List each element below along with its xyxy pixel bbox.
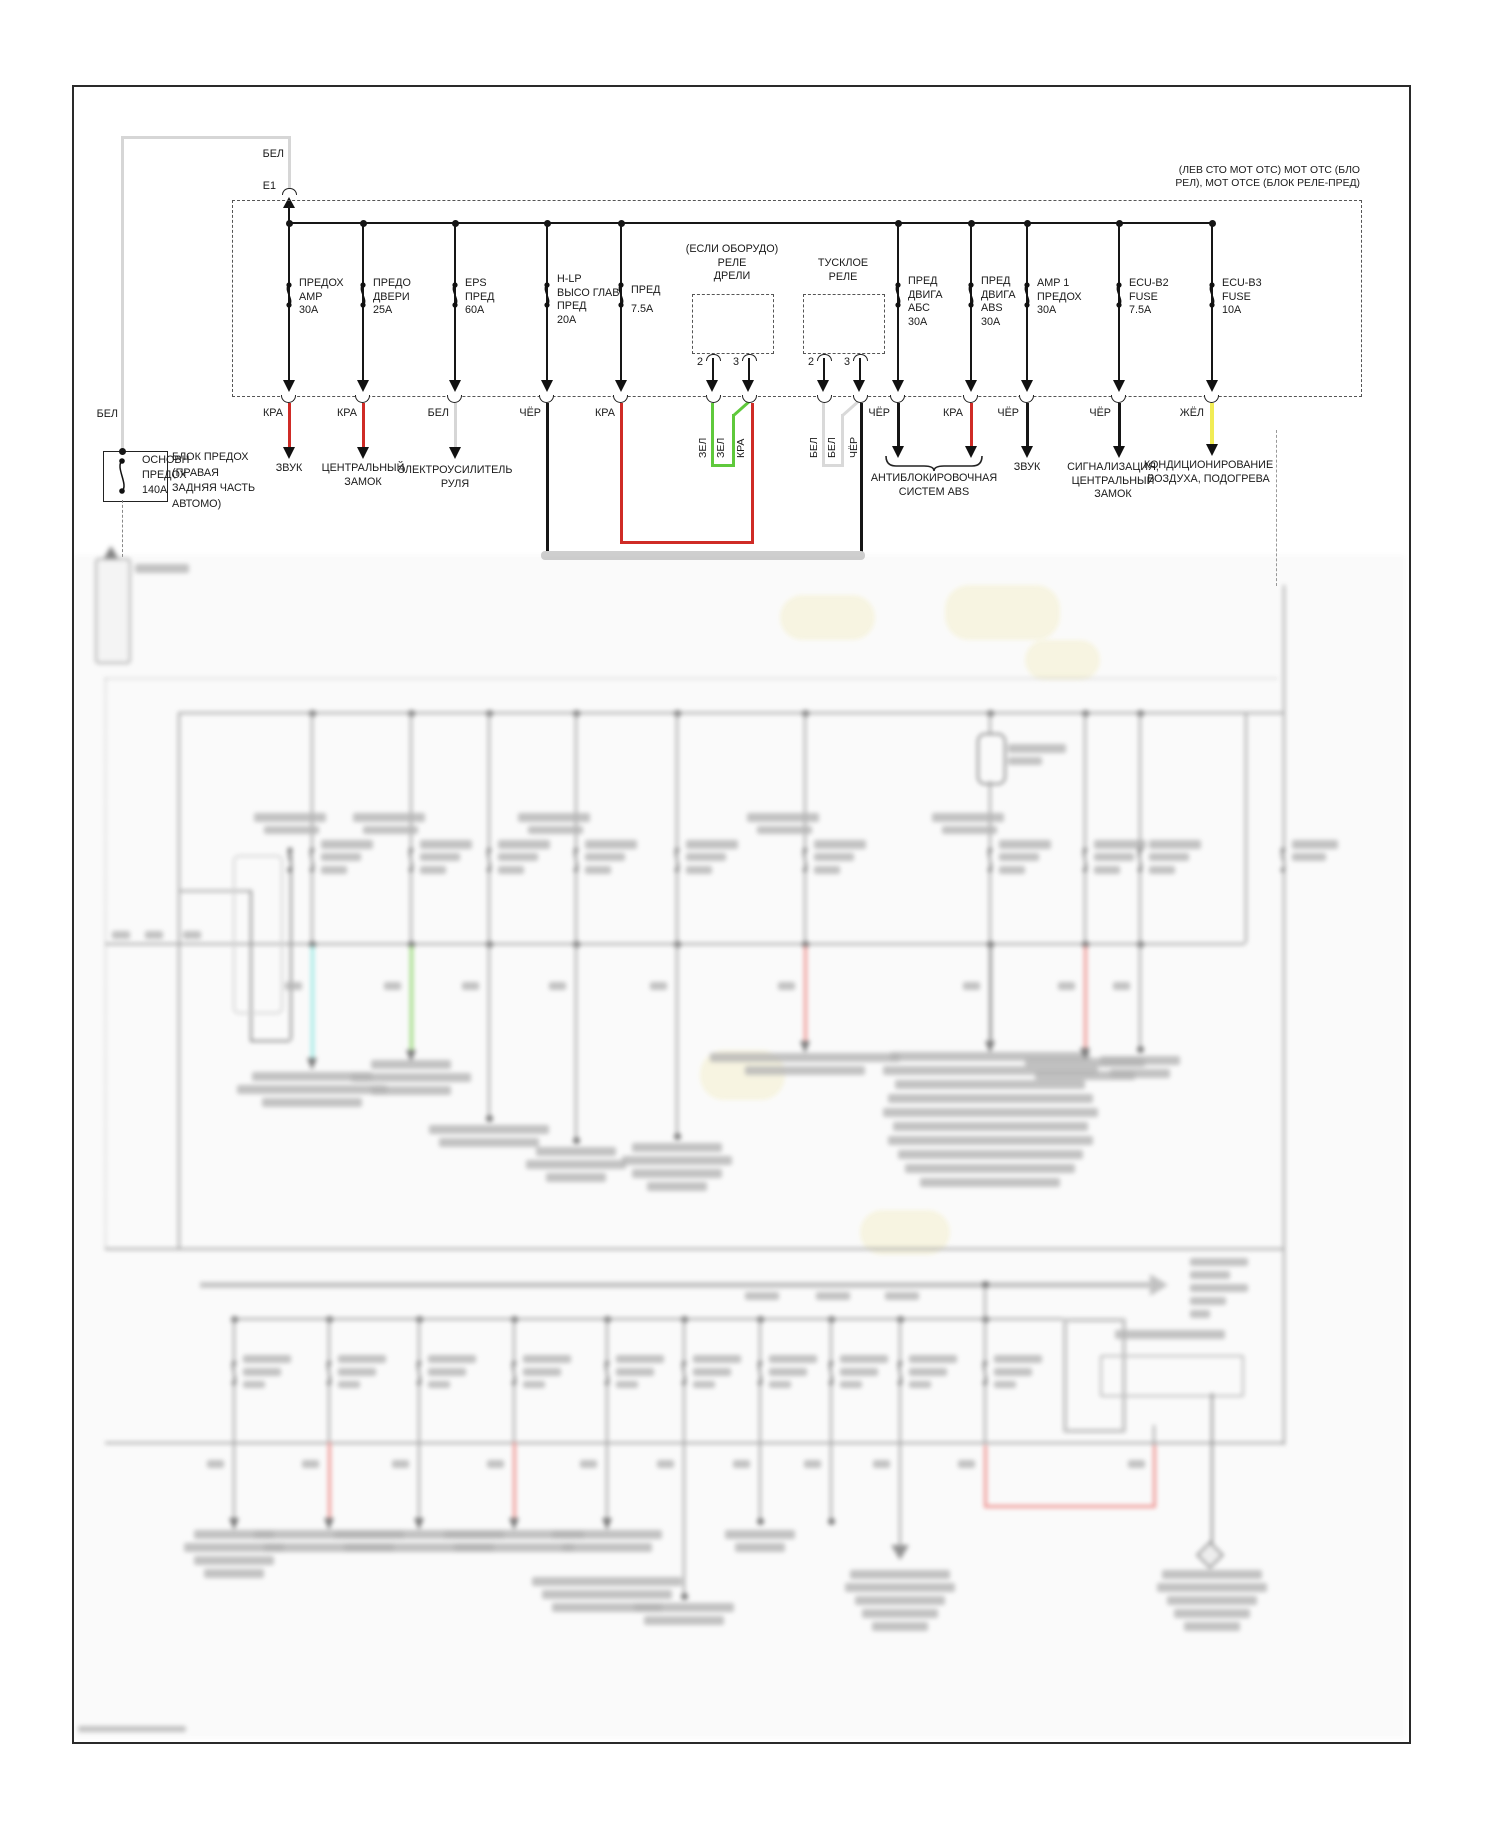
label-blob <box>1157 1583 1267 1592</box>
label-blob <box>994 1381 1016 1388</box>
label-blob <box>909 1368 947 1376</box>
wire-segment <box>488 943 490 1115</box>
label-blob <box>634 1603 734 1612</box>
label-blob <box>338 1368 376 1376</box>
label-blob <box>338 1381 360 1388</box>
label-blob <box>498 853 538 861</box>
junction-dot <box>828 1518 835 1525</box>
fuse-symbol <box>669 845 685 880</box>
wire-segment <box>1153 1425 1155 1445</box>
label-blob <box>942 826 997 834</box>
pin-stem <box>712 358 714 382</box>
label-blob <box>693 1381 715 1388</box>
wire-segment <box>234 1318 1063 1320</box>
label-blob <box>999 853 1039 861</box>
connector-box <box>1100 1355 1244 1397</box>
fuse-symbol <box>599 1358 615 1393</box>
label-blob <box>428 1368 466 1376</box>
label-blob <box>363 826 418 834</box>
wire-arrow-icon <box>800 1041 810 1053</box>
fuse-symbol <box>982 845 998 880</box>
label-blob <box>735 1543 785 1552</box>
label-blob <box>487 1460 504 1468</box>
label-blob <box>686 866 712 874</box>
label-blob <box>814 840 866 849</box>
label-blob <box>532 1577 682 1586</box>
label-blob <box>585 853 625 861</box>
wire-arrow-icon <box>742 380 754 392</box>
wire-segment <box>105 1442 1283 1444</box>
smudge <box>1025 640 1100 680</box>
label-blob <box>647 1182 707 1191</box>
wire-segment <box>250 1040 290 1042</box>
smudge <box>945 585 1060 640</box>
label-blob <box>428 1355 476 1363</box>
label-blob <box>898 1150 1083 1159</box>
fuse-symbol <box>506 1358 522 1393</box>
dashed-edge <box>105 678 1277 679</box>
label-blob <box>523 1381 545 1388</box>
label-blob <box>321 866 347 874</box>
fuse-symbol <box>1204 280 1220 315</box>
connector-box <box>95 558 131 664</box>
label-blob <box>909 1381 931 1388</box>
wire-segment <box>418 1442 420 1518</box>
fuse-symbol <box>1275 845 1291 880</box>
label-blob <box>542 1590 672 1599</box>
label-blob <box>686 853 726 861</box>
fuse-symbol <box>977 1358 993 1393</box>
smudge <box>780 595 875 640</box>
label-blob <box>462 982 479 990</box>
label-blob <box>1190 1310 1210 1318</box>
label-blob <box>909 1355 957 1363</box>
wire-segment <box>1245 712 1247 943</box>
label-blob <box>686 840 738 849</box>
label-blob <box>1008 744 1066 753</box>
wire-arrow-icon <box>414 1518 424 1530</box>
label-blob <box>757 826 812 834</box>
label-blob <box>632 1143 722 1152</box>
wire-arrow-icon <box>307 1058 317 1070</box>
dashed-edge <box>105 678 106 1248</box>
wire-arrow-icon <box>324 1518 334 1530</box>
wire-segment <box>328 1442 331 1518</box>
label-blob <box>814 853 854 861</box>
wire-segment <box>200 1282 1150 1288</box>
label-blob <box>1110 1069 1170 1078</box>
junction-dot <box>573 1137 580 1144</box>
label-blob <box>840 1355 888 1363</box>
next-page-arrow-icon <box>1150 1274 1168 1296</box>
wire-segment <box>311 946 314 1058</box>
label-blob <box>999 866 1025 874</box>
label-blob <box>994 1368 1032 1376</box>
fuse-symbol <box>890 280 906 315</box>
label-blob <box>145 931 163 939</box>
label-blob <box>546 1173 606 1182</box>
label-blob <box>1184 1622 1240 1631</box>
wire-segment <box>1139 712 1141 943</box>
label-blob <box>725 1530 795 1539</box>
wire-segment <box>1211 1393 1213 1545</box>
label-blob <box>1058 982 1075 990</box>
wire-segment <box>899 1442 901 1545</box>
label-blob <box>353 813 425 822</box>
label-blob <box>549 982 566 990</box>
wire-arrow-icon <box>817 380 829 392</box>
label-blob <box>745 1066 865 1075</box>
label-blob <box>194 1556 274 1565</box>
label-blob <box>920 1178 1060 1187</box>
fuse-symbol <box>321 1358 337 1393</box>
label-blob <box>338 1355 386 1363</box>
label-blob <box>518 813 590 822</box>
fuse-symbol <box>481 845 497 880</box>
fuse-symbol <box>355 280 371 315</box>
junction-dot <box>681 1593 688 1600</box>
label-blob <box>616 1355 664 1363</box>
ground-icon <box>891 1545 909 1560</box>
label-blob <box>999 840 1051 849</box>
label-blob <box>420 853 460 861</box>
label-blob <box>1190 1271 1230 1279</box>
junction-dot <box>1137 1046 1144 1053</box>
label-blob <box>1008 757 1042 765</box>
label-blob <box>371 1060 451 1069</box>
label-blob <box>321 840 373 849</box>
label-blob <box>523 1368 561 1376</box>
wire-segment <box>606 1442 608 1518</box>
label-blob <box>207 1460 224 1468</box>
label-blob <box>616 1368 654 1376</box>
label-blob <box>585 840 637 849</box>
label-blob <box>254 813 326 822</box>
wire-arrow-icon <box>706 380 718 392</box>
fuse-symbol <box>823 1358 839 1393</box>
label-blob <box>528 826 583 834</box>
blurred-lower-diagram <box>0 0 1500 1828</box>
label-blob <box>710 1053 900 1062</box>
wire-arrow-icon <box>541 380 553 392</box>
label-blob <box>958 1460 975 1468</box>
wire-arrow-icon <box>965 380 977 392</box>
label-blob <box>262 1098 362 1107</box>
wire-arrow-icon <box>283 380 295 392</box>
wire-arrow-icon <box>1021 380 1033 392</box>
wire-segment <box>1084 946 1087 1048</box>
wire-arrow-icon <box>229 1518 239 1530</box>
label-blob <box>840 1368 878 1376</box>
label-blob <box>994 1355 1042 1363</box>
fuse-symbol <box>1111 280 1127 315</box>
wiring-diagram-page: БЕЛ E1 (ЛЕВ СТО МОТ ОТС) МОТ ОТС (БЛО РЕ… <box>0 0 1500 1828</box>
wire-segment <box>488 712 490 943</box>
fuse-symbol <box>963 280 979 315</box>
wire-arrow-icon <box>357 380 369 392</box>
wire-arrow-icon <box>615 380 627 392</box>
label-blob <box>429 1125 549 1134</box>
wire-segment <box>1283 585 1285 1445</box>
pin-stem <box>823 358 825 382</box>
label-blob <box>580 1460 597 1468</box>
wire-arrow-icon <box>1113 380 1125 392</box>
label-blob <box>1149 853 1189 861</box>
label-blob <box>883 1108 1098 1117</box>
label-blob <box>526 1160 626 1169</box>
label-blob <box>895 1080 1085 1089</box>
label-blob <box>814 866 840 874</box>
wire-segment <box>575 943 577 1137</box>
junction-dot <box>982 1281 989 1288</box>
label-blob <box>778 982 795 990</box>
wire-segment <box>1153 1445 1156 1505</box>
label-blob <box>850 1570 950 1579</box>
label-blob <box>644 1616 724 1625</box>
wire-arrow-icon <box>892 380 904 392</box>
connector-box <box>233 855 283 1014</box>
label-blob <box>498 840 550 849</box>
label-blob <box>1128 1460 1145 1468</box>
wire-segment <box>233 1442 235 1518</box>
fuse-symbol <box>403 845 419 880</box>
label-blob <box>693 1355 741 1363</box>
label-blob <box>428 1381 450 1388</box>
label-blob <box>616 1381 638 1388</box>
label-blob <box>1113 982 1130 990</box>
fuse-symbol <box>282 845 298 880</box>
label-blob <box>873 1460 890 1468</box>
fuse-symbol <box>539 280 555 315</box>
junction-dot <box>674 1133 681 1140</box>
label-blob <box>552 1530 662 1539</box>
label-blob <box>285 982 302 990</box>
label-blob <box>963 982 980 990</box>
label-blob <box>1094 853 1134 861</box>
fuse-symbol <box>1132 845 1148 880</box>
label-blob <box>632 1169 722 1178</box>
label-blob <box>351 1073 471 1082</box>
wire-segment <box>676 712 678 943</box>
label-blob <box>1190 1284 1248 1292</box>
label-blob <box>1167 1596 1257 1605</box>
label-blob <box>885 1292 919 1300</box>
label-blob <box>862 1609 938 1618</box>
label-blob <box>1190 1258 1248 1266</box>
wire-arrow-icon <box>1206 380 1218 392</box>
wire-segment <box>676 943 678 1133</box>
arrow-up-icon <box>104 546 118 558</box>
label-blob <box>657 1460 674 1468</box>
connector-box <box>977 733 1006 785</box>
label-blob <box>392 1460 409 1468</box>
label-blob <box>243 1381 265 1388</box>
label-blob <box>1149 866 1175 874</box>
label-blob <box>1292 840 1338 849</box>
wire-segment <box>984 1445 987 1505</box>
pin-stem <box>748 358 750 382</box>
fuse-symbol <box>226 1358 242 1393</box>
label-blob <box>769 1355 817 1363</box>
label-blob <box>804 1460 821 1468</box>
label-blob <box>204 1569 264 1578</box>
label-blob <box>1149 840 1201 849</box>
fuse-symbol <box>613 280 629 315</box>
wire-segment <box>513 1442 516 1518</box>
label-blob <box>585 866 611 874</box>
label-blob <box>650 982 667 990</box>
wire-arrow-icon <box>602 1518 612 1530</box>
wire-arrow-icon <box>509 1518 519 1530</box>
label-blob <box>1162 1570 1262 1579</box>
wire-segment <box>989 946 992 1041</box>
label-blob <box>536 1147 616 1156</box>
fuse-symbol <box>1077 845 1093 880</box>
label-blob <box>733 1460 750 1468</box>
label-blob <box>112 931 130 939</box>
label-blob <box>693 1368 731 1376</box>
wire-segment <box>1139 943 1141 1046</box>
fuse-symbol <box>892 1358 908 1393</box>
label-blob <box>264 826 319 834</box>
wire-arrow-icon <box>853 380 865 392</box>
label-blob <box>1174 1609 1250 1618</box>
label-blob <box>420 866 446 874</box>
label-blob <box>845 1583 955 1592</box>
wire-segment <box>178 712 180 1248</box>
label-blob <box>932 813 1004 822</box>
wire-segment <box>984 1505 1156 1508</box>
label-blob <box>1094 866 1120 874</box>
label-blob <box>747 813 819 822</box>
fuse-symbol <box>1019 280 1035 315</box>
label-blob <box>622 1156 732 1165</box>
label-blob <box>745 1292 779 1300</box>
label-blob <box>420 840 472 849</box>
label-blob <box>237 1085 387 1094</box>
label-blob <box>1292 853 1326 861</box>
label-blob <box>321 853 361 861</box>
label-blob <box>523 1355 571 1363</box>
wire-segment <box>178 712 1283 714</box>
label-blob <box>135 564 189 573</box>
label-blob <box>816 1292 850 1300</box>
label-blob <box>1190 1297 1226 1305</box>
label-blob <box>1100 1056 1180 1065</box>
label-blob <box>371 1086 451 1095</box>
fuse-symbol <box>568 845 584 880</box>
wire-segment <box>759 1442 761 1518</box>
label-blob <box>888 1094 1093 1103</box>
junction-dot <box>486 1115 493 1122</box>
label-blob <box>893 1122 1088 1131</box>
label-blob <box>1115 1330 1225 1339</box>
label-blob <box>302 1460 319 1468</box>
label-blob <box>498 866 524 874</box>
wire-segment <box>830 1442 832 1518</box>
wire-segment <box>804 946 807 1041</box>
label-blob <box>840 1381 862 1388</box>
label-blob <box>769 1368 807 1376</box>
label-blob <box>183 931 201 939</box>
junction-dot <box>757 1518 764 1525</box>
label-blob <box>872 1622 928 1631</box>
fuse-symbol <box>304 845 320 880</box>
label-blob <box>384 982 401 990</box>
wire-segment <box>1084 712 1086 943</box>
wire-segment <box>683 1442 685 1593</box>
label-blob <box>78 1726 186 1732</box>
fuse-symbol <box>797 845 813 880</box>
pin-stem <box>859 358 861 382</box>
fuse-symbol <box>752 1358 768 1393</box>
label-blob <box>562 1543 652 1552</box>
wire-arrow-icon <box>449 380 461 392</box>
label-blob <box>888 1136 1093 1145</box>
wire-segment <box>410 946 413 1050</box>
label-blob <box>769 1381 791 1388</box>
wire-segment <box>105 1248 1283 1250</box>
label-blob <box>454 1543 574 1552</box>
label-blob <box>439 1138 539 1147</box>
fuse-symbol <box>281 280 297 315</box>
label-blob <box>855 1596 945 1605</box>
wire-segment <box>989 712 991 733</box>
fuse-symbol <box>447 280 463 315</box>
label-blob <box>243 1355 291 1363</box>
label-blob <box>243 1368 281 1376</box>
label-blob <box>905 1164 1075 1173</box>
fuse-symbol <box>411 1358 427 1393</box>
fuse-symbol <box>676 1358 692 1393</box>
